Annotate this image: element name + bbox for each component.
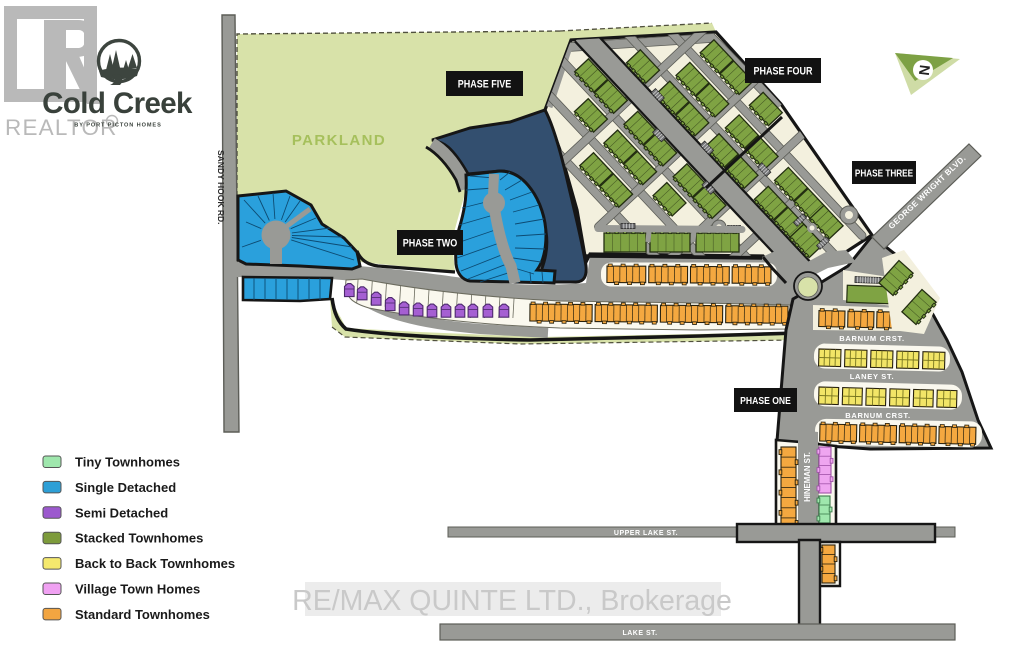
svg-text:Standard Townhomes: Standard Townhomes — [75, 607, 210, 622]
svg-text:SANDY HOOK RD.: SANDY HOOK RD. — [216, 150, 226, 224]
svg-text:Cold Creek: Cold Creek — [42, 87, 193, 120]
svg-text:BY PORT PICTON HOMES: BY PORT PICTON HOMES — [74, 123, 161, 129]
svg-text:LANEY ST.: LANEY ST. — [850, 372, 895, 381]
svg-text:BARNUM CRST.: BARNUM CRST. — [845, 411, 910, 420]
svg-text:Tiny Townhomes: Tiny Townhomes — [75, 455, 180, 470]
svg-text:PHASE FIVE: PHASE FIVE — [458, 79, 512, 91]
svg-text:PHASE TWO: PHASE TWO — [403, 238, 458, 250]
svg-text:PHASE THREE: PHASE THREE — [855, 168, 913, 179]
svg-text:N: N — [915, 64, 932, 76]
svg-text:Back to Back Townhomes: Back to Back Townhomes — [75, 556, 235, 571]
svg-text:Single Detached: Single Detached — [75, 480, 176, 495]
svg-text:Village Town Homes: Village Town Homes — [75, 582, 200, 597]
svg-text:LAKE ST.: LAKE ST. — [622, 630, 657, 637]
svg-text:Semi Detached: Semi Detached — [75, 505, 168, 520]
svg-text:UPPER LAKE ST.: UPPER LAKE ST. — [614, 530, 678, 537]
svg-text:RE/MAX QUINTE LTD., Brokerage: RE/MAX QUINTE LTD., Brokerage — [292, 585, 732, 617]
svg-text:PHASE FOUR: PHASE FOUR — [753, 66, 813, 78]
svg-text:PHASE ONE: PHASE ONE — [740, 395, 791, 407]
svg-text:PARKLAND: PARKLAND — [292, 132, 386, 149]
svg-text:HINEMAN ST.: HINEMAN ST. — [803, 452, 812, 502]
svg-text:BARNUM CRST.: BARNUM CRST. — [839, 334, 904, 343]
svg-text:Stacked Townhomes: Stacked Townhomes — [75, 531, 203, 546]
